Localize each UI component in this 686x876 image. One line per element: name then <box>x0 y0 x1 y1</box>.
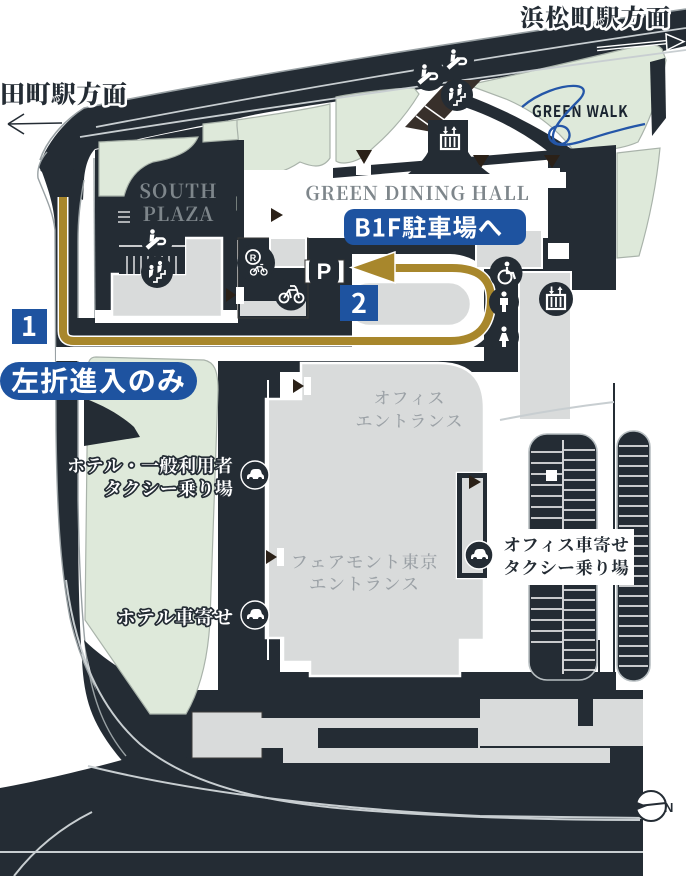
svg-text:R: R <box>250 253 257 263</box>
svg-text:P: P <box>317 259 332 284</box>
svg-text:N: N <box>664 800 673 815</box>
